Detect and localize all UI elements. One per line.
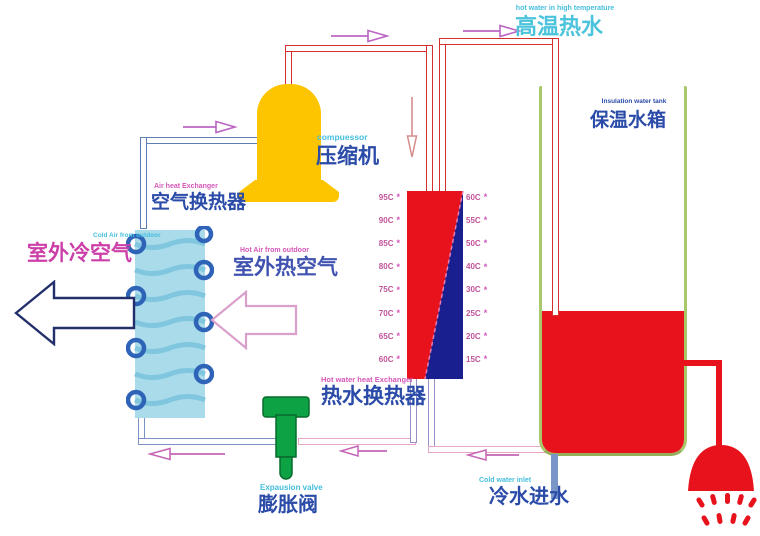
flow-arrow-left-icon — [338, 443, 388, 459]
hx-temp-marker: * — [484, 354, 488, 364]
air-heat-exchanger-label-en: Air heat Exchanger — [154, 183, 218, 190]
pipe-hotwater-vertical-into-tank — [552, 38, 559, 316]
hx-temp-marker: * — [484, 192, 488, 202]
hx-temp-left-1: 90C* — [379, 215, 400, 225]
cold-air-label-zh: 室外冷空气 — [27, 243, 132, 265]
expansion-valve-label-zh: 膨胀阀 — [258, 495, 318, 516]
hot-air-label-zh: 室外热空气 — [233, 257, 338, 279]
hx-temp-marker: * — [396, 192, 400, 202]
hot-water-top-label-zh: 高温热水 — [515, 15, 603, 38]
cold-water-inlet-label-en: Cold water inlet — [479, 477, 531, 484]
shower-head — [686, 443, 756, 493]
pipe-suction-horizontal — [140, 137, 260, 144]
compressor-label-zh: 压缩机 — [316, 146, 379, 168]
hx-temp-marker: * — [484, 308, 488, 318]
pipe-suction-vertical — [140, 137, 147, 229]
hx-temp-right-3: 40C* — [466, 262, 487, 272]
hx-temp-marker: * — [396, 262, 400, 272]
hx-temp-value: 20C — [466, 332, 481, 341]
flow-arrow-right-icon — [182, 118, 238, 136]
shower-droplet — [747, 497, 757, 509]
hx-temp-marker: * — [396, 238, 400, 248]
shower-droplet — [725, 493, 730, 504]
hx-temp-left-7: 60C* — [379, 354, 400, 364]
shower-droplet — [701, 514, 711, 526]
hx-temp-marker: * — [396, 308, 400, 318]
pipe-hx-bottom-right-vertical — [428, 377, 435, 452]
hot-water-heat-exchanger-label-zh: 热水换热器 — [321, 386, 426, 408]
hx-temp-marker: * — [484, 238, 488, 248]
hx-temp-value: 75C — [379, 285, 394, 294]
hx-temp-left-2: 85C* — [379, 238, 400, 248]
hx-temp-value: 60C — [379, 355, 394, 364]
hx-temp-marker: * — [396, 331, 400, 341]
hx-temperature-scale-right: 60C*55C*50C*40C*30C*25C*20C*15C* — [466, 192, 500, 382]
hx-temp-marker: * — [484, 285, 488, 295]
cold-air-out-block-arrow — [14, 280, 136, 346]
hot-water-top-label-en: hot water in high temperature — [500, 5, 630, 12]
hx-temp-left-6: 65C* — [379, 331, 400, 341]
tank-label-zh: 保温水箱 — [590, 111, 666, 131]
cold-air-label-en: Cold Air from outdoor — [93, 233, 161, 240]
pipe-discharge-horizontal — [285, 45, 433, 52]
shower-droplet — [742, 514, 752, 526]
hx-temp-value: 30C — [466, 285, 481, 294]
hx-temp-value: 40C — [466, 262, 481, 271]
hx-temp-marker: * — [396, 215, 400, 225]
cold-water-inlet-label-zh: 冷水进水 — [489, 487, 569, 508]
hx-temp-value: 15C — [466, 355, 481, 364]
pipe-discharge-vertical-to-hx — [426, 45, 433, 193]
pipe-shower-vertical — [716, 360, 722, 447]
hx-temp-value: 95C — [379, 193, 394, 202]
expansion-valve — [262, 395, 312, 485]
hx-temp-value: 65C — [379, 332, 394, 341]
hx-temp-value: 60C — [466, 193, 481, 202]
tank-label-en: Insulation water tank — [574, 99, 694, 106]
hx-temp-value: 25C — [466, 309, 481, 318]
flow-arrow-right-icon — [462, 22, 522, 40]
hx-temp-value: 80C — [379, 262, 394, 271]
hx-temp-left-5: 70C* — [379, 308, 400, 318]
heat-pump-system-diagram: 95C*90C*85C*80C*75C*70C*65C*60C* 60C*55C… — [0, 0, 760, 536]
pipe-liquid-horizontal-valve-to-coil — [138, 438, 280, 445]
shower-droplet — [695, 497, 705, 509]
air-coil — [126, 226, 214, 422]
insulation-water-tank — [539, 86, 687, 456]
hot-water-heat-exchanger-label-en: Hot water heat Exchanger — [321, 376, 413, 384]
flow-arrow-left-icon — [464, 447, 520, 463]
pipe-hotwater-vertical-from-hx — [439, 38, 446, 193]
flow-arrow-down-icon — [404, 96, 420, 160]
hot-air-in-block-arrow — [210, 290, 298, 350]
hx-temp-value: 90C — [379, 216, 394, 225]
flow-arrow-left-icon — [146, 445, 226, 463]
compressor-label-en: compuessor — [317, 133, 368, 142]
hx-temp-value: 55C — [466, 216, 481, 225]
hx-temp-marker: * — [484, 331, 488, 341]
shower-droplet — [737, 494, 745, 506]
hx-temp-marker: * — [396, 354, 400, 364]
tank-hot-water-fill — [542, 311, 684, 453]
expansion-valve-label-en: Expausion valve — [260, 484, 323, 492]
flow-arrow-right-icon — [330, 27, 390, 45]
shower-droplet — [710, 494, 718, 506]
hx-temp-right-4: 30C* — [466, 285, 487, 295]
air-heat-exchanger-label-zh: 空气换热器 — [151, 193, 246, 213]
compressor-base — [239, 180, 339, 202]
hx-temp-value: 50C — [466, 239, 481, 248]
hx-temp-marker: * — [484, 215, 488, 225]
shower-droplet — [730, 513, 737, 525]
hx-temp-marker: * — [396, 285, 400, 295]
hx-temp-marker: * — [484, 262, 488, 272]
hx-temp-left-4: 75C* — [379, 285, 400, 295]
hot-air-label-en: Hot Air from outdoor — [240, 247, 309, 254]
hx-temp-value: 70C — [379, 309, 394, 318]
hx-temp-right-7: 15C* — [466, 354, 487, 364]
hx-temp-left-3: 80C* — [379, 262, 400, 272]
hx-temp-left-0: 95C* — [379, 192, 400, 202]
hx-temp-right-6: 20C* — [466, 331, 487, 341]
hx-temp-right-5: 25C* — [466, 308, 487, 318]
shower-droplet — [716, 513, 723, 525]
hot-water-heat-exchanger — [406, 190, 464, 380]
hx-temp-right-2: 50C* — [466, 238, 487, 248]
hx-temp-right-1: 55C* — [466, 215, 487, 225]
compressor-body — [257, 84, 321, 186]
hx-temp-value: 85C — [379, 239, 394, 248]
hx-temp-right-0: 60C* — [466, 192, 487, 202]
hx-temperature-scale-left: 95C*90C*85C*80C*75C*70C*65C*60C* — [366, 192, 400, 382]
